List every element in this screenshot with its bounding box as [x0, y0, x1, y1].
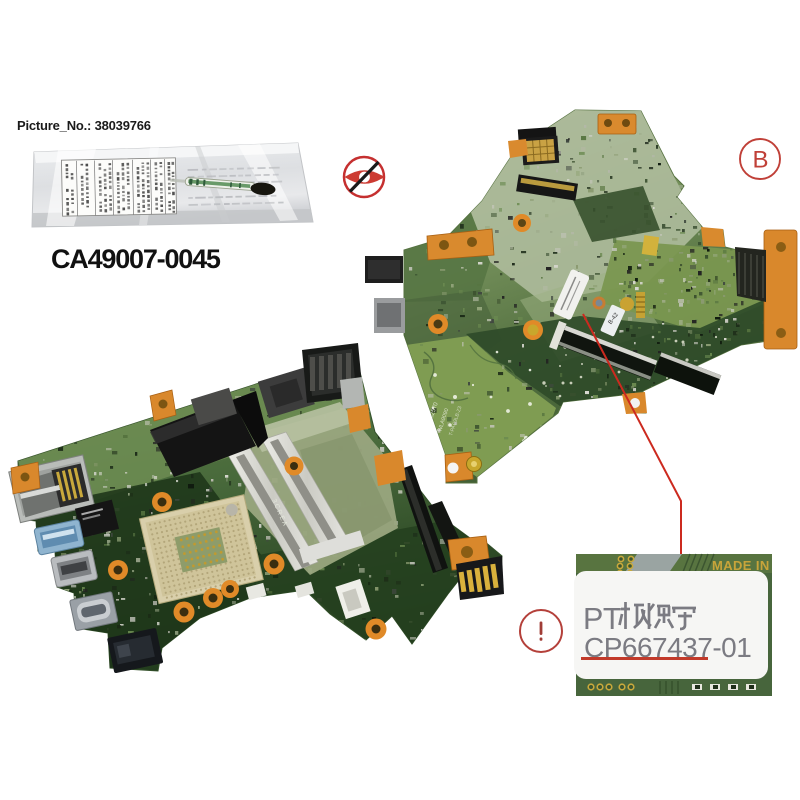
svg-text:MADE IN: MADE IN [712, 558, 770, 573]
svg-text:CA49007-0045: CA49007-0045 [51, 244, 221, 274]
svg-text:PT: PT [583, 602, 621, 636]
svg-text:Picture_No.: 38039766: Picture_No.: 38039766 [17, 118, 151, 133]
svg-text:B: B [752, 147, 768, 174]
